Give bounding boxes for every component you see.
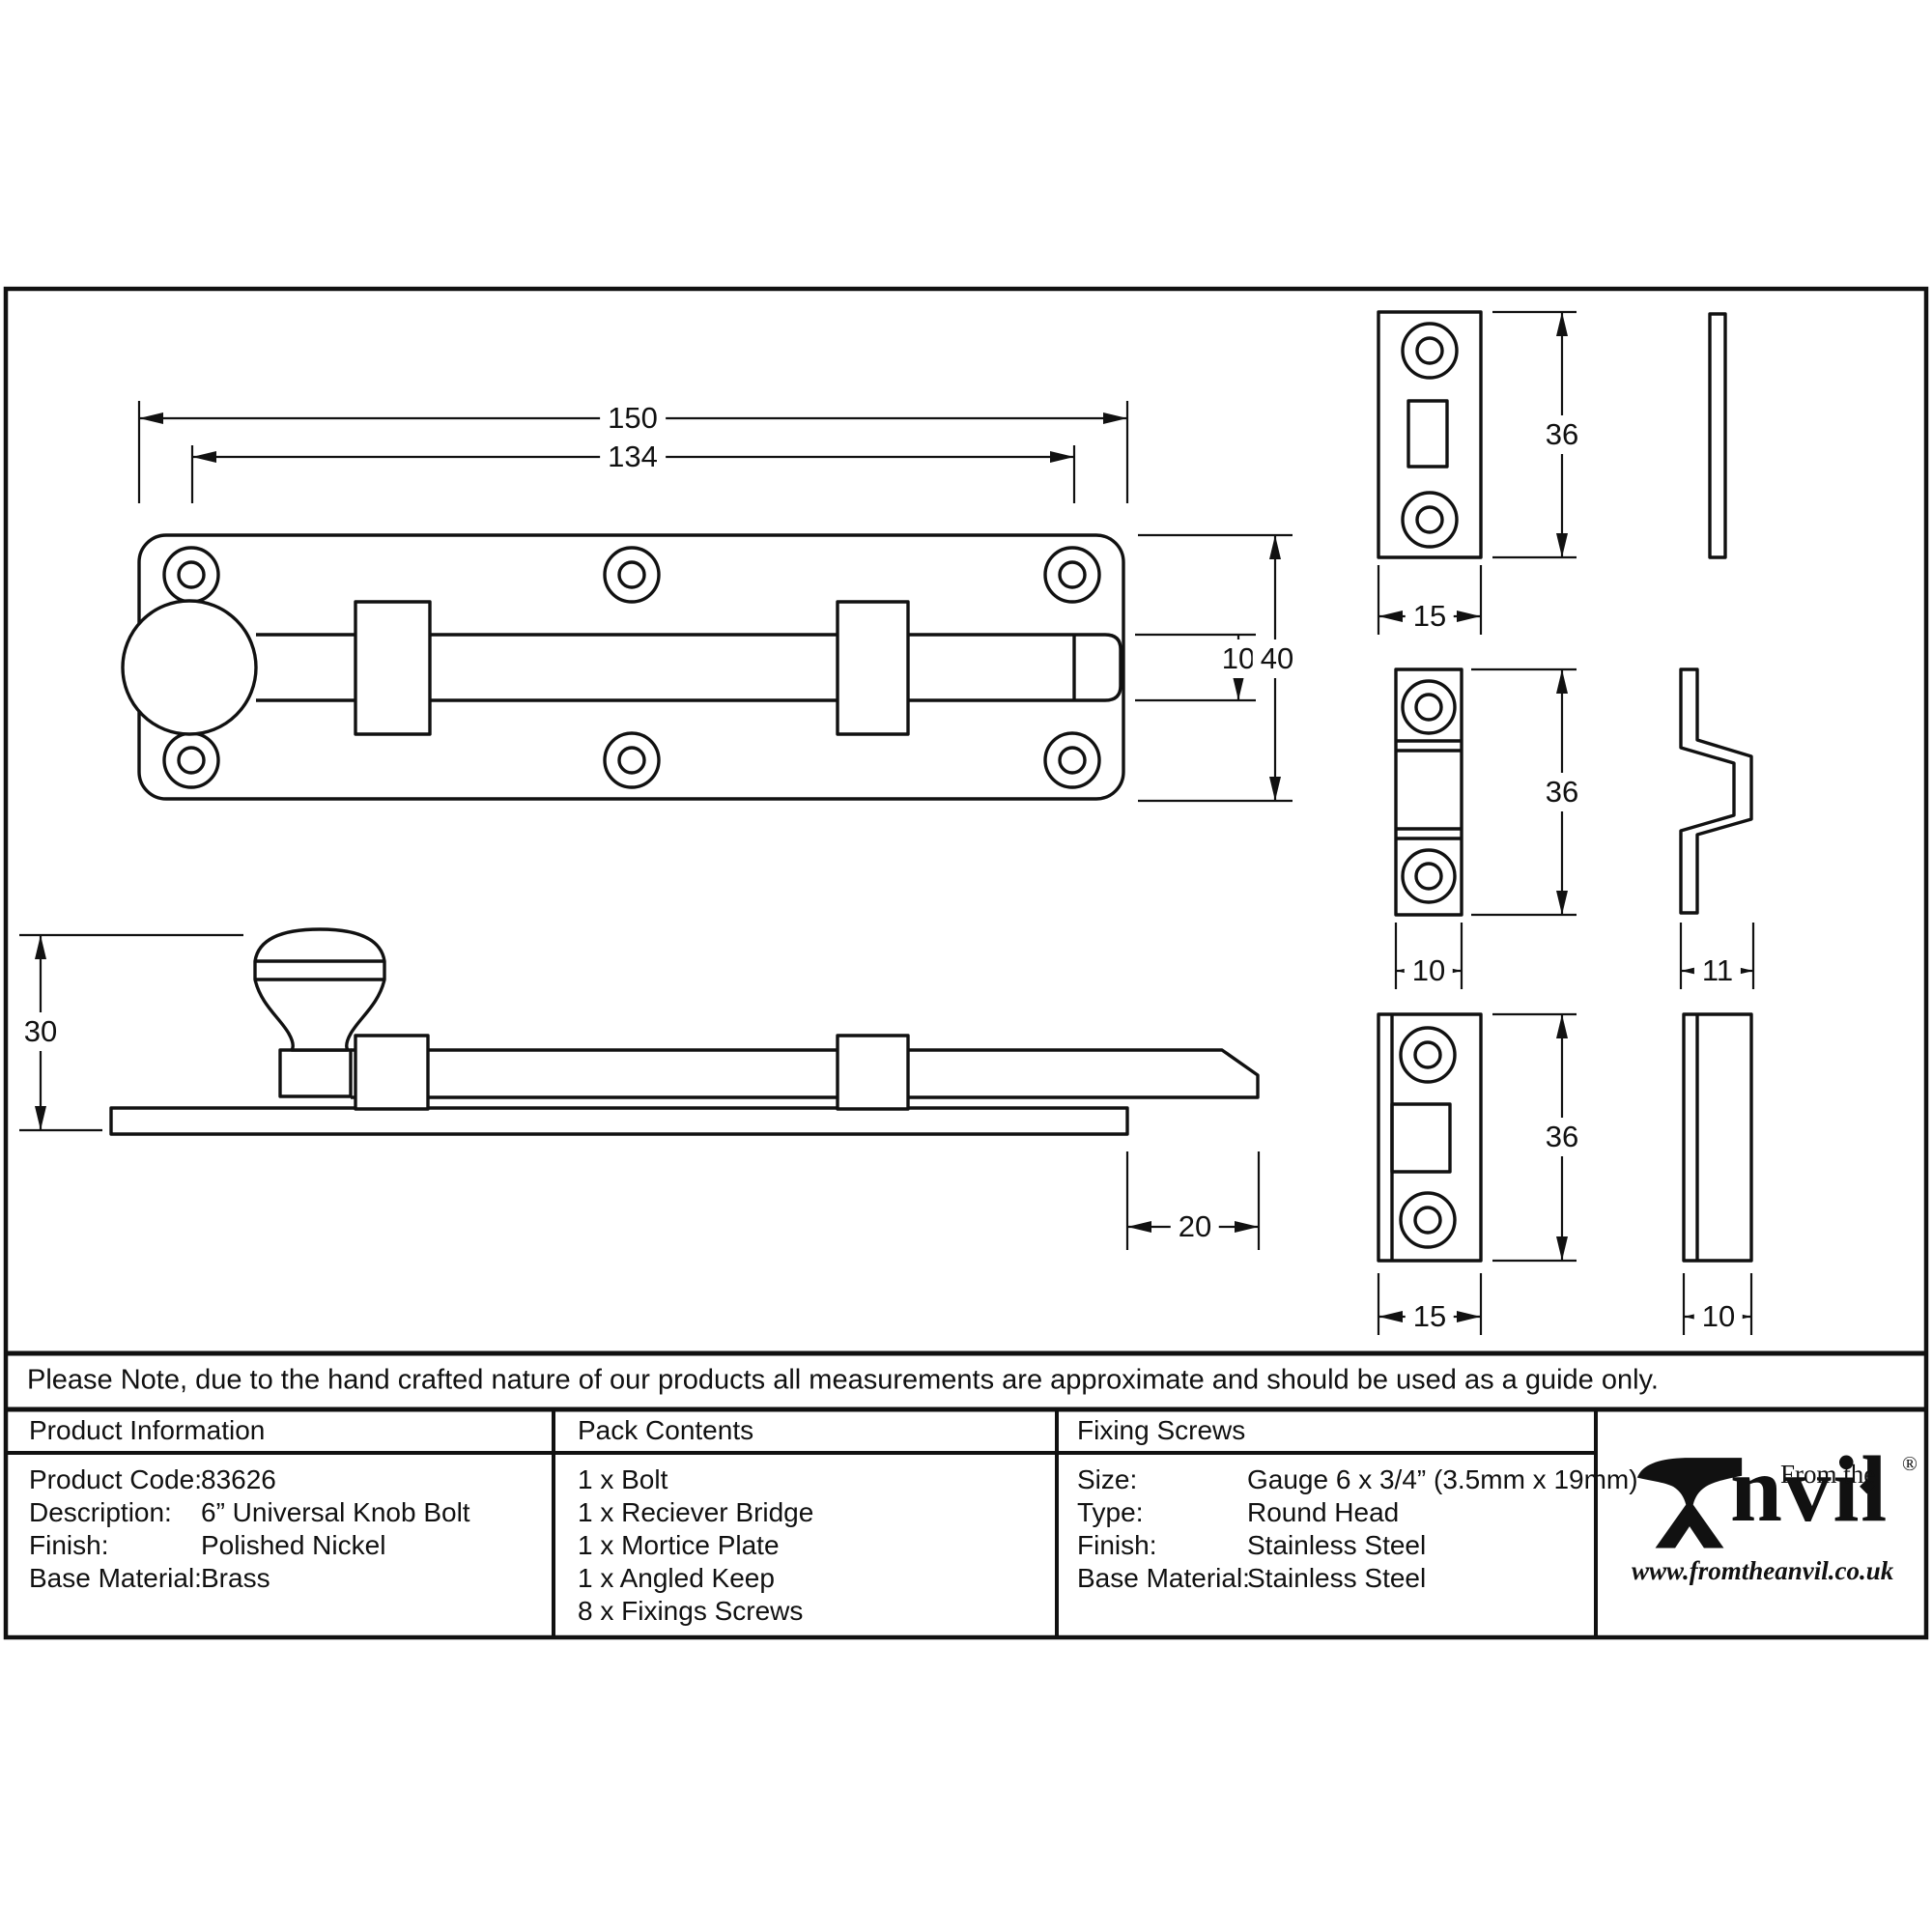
bolt-slot-end [1074, 635, 1121, 700]
guide-block [838, 602, 908, 734]
table-row: Base Material: [29, 1563, 202, 1594]
anvil-icon [1635, 1450, 1744, 1550]
bolt-top-view [123, 535, 1123, 799]
guide-block [355, 602, 430, 734]
pack-contents-header: Pack Contents [578, 1415, 753, 1446]
list-item: 8 x Fixings Screws [578, 1596, 803, 1627]
fixing-screws-header: Fixing Screws [1077, 1415, 1245, 1446]
table-value: Stainless Steel [1247, 1563, 1426, 1594]
table-row: Size: [1077, 1464, 1137, 1495]
list-item: 1 x Bolt [578, 1464, 668, 1495]
angled-keep-profile [1681, 669, 1751, 913]
dim-mortice-width: 15 [1406, 597, 1454, 636]
table-row: Description: [29, 1497, 172, 1528]
table-row: Base Material: [1077, 1563, 1250, 1594]
dimension-lines [41, 312, 1753, 1317]
guide-block-side [355, 1036, 428, 1109]
brand-logo: nvil From the ◆ ® www.fromtheanvil.co.uk [1597, 1409, 1927, 1638]
product-information-header: Product Information [29, 1415, 265, 1446]
baseplate-side [111, 1108, 1127, 1134]
technical-drawing [0, 0, 1932, 1932]
table-row: Type: [1077, 1497, 1143, 1528]
logo-website: www.fromtheanvil.co.uk [1632, 1556, 1890, 1586]
datasheet-page: 150 134 10 40 30 20 36 15 36 10 11 36 15… [0, 0, 1932, 1932]
registered-mark: ® [1902, 1452, 1918, 1476]
knob-collar-side [280, 1050, 351, 1096]
angled-keep-side [1684, 1014, 1751, 1261]
dim-overall-length: 150 [600, 399, 666, 438]
list-item: 1 x Mortice Plate [578, 1530, 780, 1561]
table-row: Finish: [29, 1530, 108, 1561]
dim-bridge-width: 10 [1405, 952, 1453, 990]
dim-keep-height: 36 [1538, 1118, 1586, 1156]
screw-holes-top-view [164, 548, 1099, 787]
dim-fixing-centres: 134 [600, 438, 666, 476]
extension-lines [19, 312, 1753, 1335]
table-value: Gauge 6 x 3/4” (3.5mm x 19mm) [1247, 1464, 1638, 1495]
dim-mortice-height: 36 [1538, 415, 1586, 454]
knob-top-view [123, 601, 256, 734]
knob-side-view [255, 929, 384, 1050]
dim-keep-side-width: 10 [1694, 1297, 1743, 1336]
table-value: Stainless Steel [1247, 1530, 1426, 1561]
dim-keep-width: 15 [1406, 1297, 1454, 1336]
table-value: 6” Universal Knob Bolt [201, 1497, 470, 1528]
table-value: Brass [201, 1563, 270, 1594]
bolt-rod-side [351, 1050, 1258, 1097]
table-value: Polished Nickel [201, 1530, 385, 1561]
bolt-side-view [111, 929, 1258, 1134]
table-row: Finish: [1077, 1530, 1156, 1561]
table-row: Product Code: [29, 1464, 202, 1495]
list-item: 1 x Reciever Bridge [578, 1497, 813, 1528]
dim-keep-depth: 11 [1694, 952, 1741, 990]
table-value: 83626 [201, 1464, 276, 1495]
guide-block-side [838, 1036, 908, 1109]
table-value: Round Head [1247, 1497, 1399, 1528]
dim-bridge-height: 36 [1538, 773, 1586, 811]
dim-throw: 20 [1171, 1207, 1219, 1246]
list-item: 1 x Angled Keep [578, 1563, 775, 1594]
diamond-icon: ◆ [1860, 1473, 1874, 1497]
dim-side-height: 30 [16, 1012, 65, 1051]
dim-plate-width: 40 [1253, 639, 1301, 678]
mortice-plate-side [1710, 314, 1725, 557]
receiver-bridge-view [1396, 669, 1462, 915]
measurement-note: Please Note, due to the hand crafted nat… [27, 1365, 1659, 1397]
